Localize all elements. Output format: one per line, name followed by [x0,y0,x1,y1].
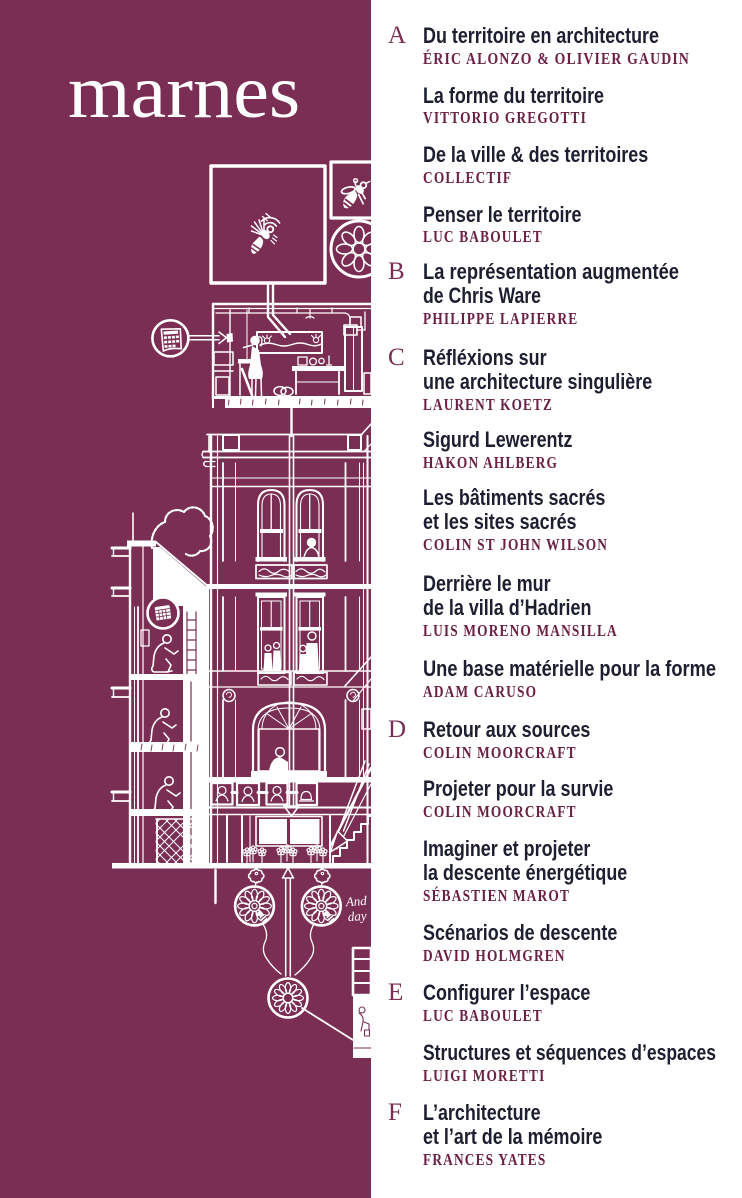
svg-text:day: day [347,908,367,924]
svg-text:And: And [344,893,367,910]
